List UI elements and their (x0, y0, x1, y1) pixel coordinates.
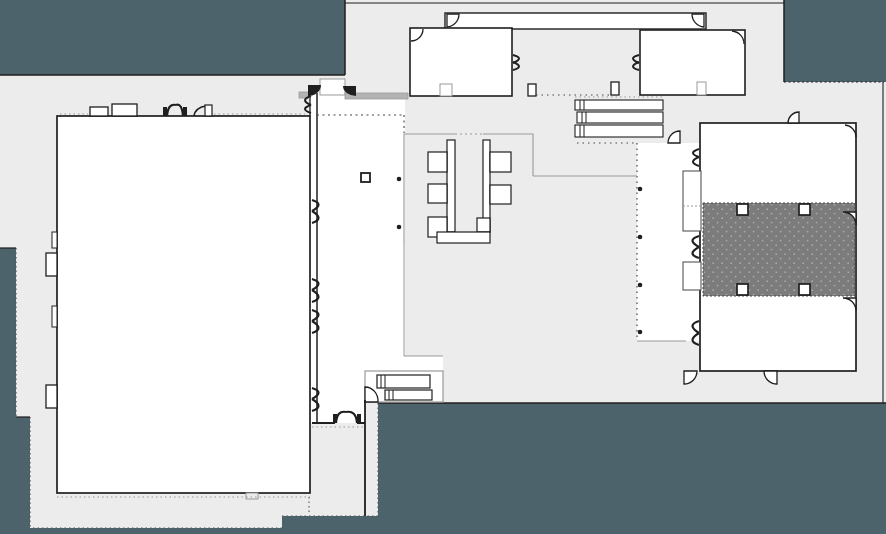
restroom-stall (490, 152, 511, 172)
wall-alcove (683, 171, 701, 231)
column-dot (397, 177, 402, 182)
column-dot (638, 330, 643, 335)
column-dot (397, 225, 402, 230)
exterior-zone-left-band-lower (0, 417, 30, 534)
escalator-bar (575, 100, 663, 110)
restroom-stall (490, 185, 511, 204)
column-dot (638, 235, 643, 240)
restroom-stall (428, 152, 447, 172)
door-jamb-post (205, 105, 212, 116)
door-jamb (333, 414, 337, 423)
room-upper-left[interactable] (410, 28, 512, 96)
floor-plan-viewport (0, 0, 886, 534)
ballroom-bump (112, 104, 137, 116)
ballroom-niche (46, 253, 57, 276)
stair-bar (385, 390, 432, 400)
exterior-zone-top-right (784, 0, 886, 82)
door-jamb (357, 414, 361, 423)
exterior-zone-bottom-right (378, 403, 886, 534)
door-jamb-post (611, 82, 619, 95)
escalator-bar (577, 112, 663, 123)
room-ballroom[interactable] (57, 116, 310, 493)
restroom-stall-passage (437, 232, 490, 243)
column-pad (737, 284, 748, 295)
restroom-stall-corridor (447, 140, 455, 232)
ballroom-bump (90, 107, 108, 116)
door-jamb (163, 107, 167, 116)
door-recess (697, 82, 706, 95)
exterior-zone-bottom-mid (282, 516, 378, 534)
column-dot (638, 187, 643, 192)
column-marker (361, 173, 370, 182)
column-pad (799, 204, 810, 215)
ballroom-niche (52, 306, 57, 327)
door-recess (246, 493, 258, 499)
restroom-stall (477, 218, 490, 232)
column-dot (638, 283, 643, 288)
escalator-bar (575, 125, 663, 137)
restroom-stall (428, 184, 447, 203)
ballroom-niche (52, 232, 57, 248)
floor-plan-canvas (0, 0, 886, 534)
exterior-zone-top-left (0, 0, 345, 75)
door-recess (440, 84, 452, 96)
column-pad (799, 284, 810, 295)
entry-notch (320, 79, 345, 95)
room-vestibule[interactable] (445, 13, 706, 29)
wall-alcove (683, 262, 701, 290)
room-east-shaded-zone[interactable] (703, 203, 855, 296)
door-jamb (183, 107, 187, 116)
room-upper-right[interactable] (640, 30, 745, 95)
door-jamb-post (528, 84, 536, 96)
ballroom-niche (46, 385, 57, 408)
exterior-zone-bottom-left (21, 528, 282, 534)
column-pad (737, 204, 748, 215)
wall-cavity (310, 93, 317, 423)
